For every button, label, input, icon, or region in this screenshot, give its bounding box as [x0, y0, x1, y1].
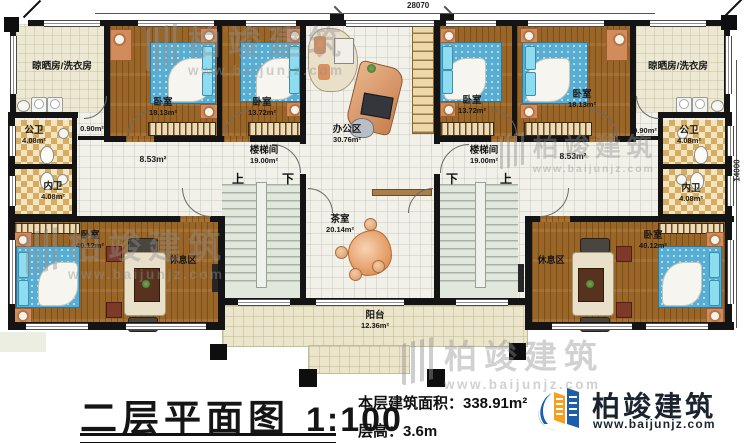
stool — [372, 260, 385, 273]
room-area: 13.72m² — [458, 107, 486, 115]
corridor-area-right: 8.53m² — [560, 152, 587, 162]
room-label-private-bath-left: 内卫4.08m² — [41, 182, 65, 201]
window — [9, 240, 16, 304]
wall — [300, 174, 306, 305]
wall — [78, 136, 108, 140]
lamp — [709, 310, 721, 322]
washer-drum — [50, 99, 60, 109]
wall — [434, 20, 440, 144]
wall — [10, 112, 78, 118]
lamp — [523, 106, 535, 118]
window — [650, 20, 706, 27]
room-area: 19.00m² — [470, 157, 499, 165]
wardrobe — [440, 122, 494, 136]
corridor-area-left: 8.53m² — [140, 155, 167, 165]
pillow — [289, 70, 300, 94]
room-label-balcony: 阳台12.36m² — [361, 311, 389, 330]
pillow — [709, 280, 720, 306]
room-area: 8.53m² — [140, 155, 167, 165]
wall — [517, 136, 589, 142]
stool — [364, 218, 377, 231]
pillow — [289, 46, 300, 70]
wall — [300, 20, 306, 144]
pillow — [442, 70, 453, 94]
wall — [434, 136, 491, 142]
window — [528, 20, 604, 27]
stair-rail-left — [256, 182, 267, 288]
pillow — [202, 72, 213, 96]
wall — [630, 20, 636, 140]
room-label-bedroom-18-left: 卧室18.13m² — [149, 98, 177, 117]
closet-area-left: 0.90m² — [80, 125, 104, 133]
room-name: 休息区 — [537, 255, 564, 265]
room-area: 40.12m² — [76, 242, 104, 250]
armchair — [128, 238, 158, 253]
pillow — [202, 46, 213, 70]
sofa-cushion — [318, 64, 330, 80]
wall — [218, 216, 225, 330]
balcony-column — [427, 369, 445, 387]
wall — [72, 114, 77, 220]
room-label-bedroom-18-right: 卧室18.13m² — [568, 90, 596, 109]
window — [26, 323, 88, 330]
plant — [586, 280, 594, 288]
lamp — [523, 30, 535, 42]
room-area: 20.14m² — [326, 226, 354, 234]
balcony-column — [299, 369, 317, 387]
room-label-stairwell-left: 楼梯间19.00m² — [250, 146, 279, 165]
window — [9, 126, 16, 156]
room-label-master-left: 卧室40.12m² — [76, 231, 104, 250]
room-label-private-bath-right: 内卫4.08m² — [679, 184, 703, 203]
room-area: 18.13m² — [149, 109, 177, 117]
room-label-public-bath-left: 公卫4.08m² — [22, 126, 46, 145]
stool — [349, 268, 362, 281]
corner-flag-line — [725, 0, 743, 16]
room-label-laundry-left: 晾晒房/洗衣房 — [32, 62, 92, 73]
wall — [104, 20, 110, 140]
room-area: 4.08m² — [41, 193, 65, 201]
pillow — [442, 46, 453, 70]
room-label-tea: 茶室20.14m² — [326, 215, 354, 234]
window — [552, 323, 632, 330]
door-threshold — [491, 136, 517, 142]
side-table — [106, 302, 122, 318]
bed-blanket — [38, 262, 78, 306]
stair-rail-right — [475, 182, 486, 288]
room-name: 晾晒房/洗衣房 — [32, 62, 92, 73]
lamp — [17, 234, 29, 246]
room-area: 13.72m² — [248, 109, 276, 117]
wardrobe — [524, 122, 592, 136]
window — [9, 176, 16, 206]
laundry-sink — [17, 100, 30, 112]
wall — [658, 112, 726, 118]
room-area: 19.00m² — [250, 157, 279, 165]
room-label-lounge-left: 休息区 — [169, 255, 196, 265]
wall — [570, 216, 734, 222]
shelf-ladder — [412, 24, 434, 134]
pillow — [18, 252, 29, 278]
room-area: 4.08m² — [679, 195, 703, 203]
window — [727, 240, 734, 304]
corner-flag-line — [23, 0, 41, 18]
corner-marker — [4, 17, 19, 32]
stool — [335, 246, 348, 259]
dimension-right-label: 14000 — [733, 151, 742, 191]
toilet — [694, 146, 708, 164]
window — [725, 36, 732, 94]
wall — [8, 216, 180, 222]
room-area: 0.90m² — [80, 125, 104, 133]
wall — [636, 136, 660, 140]
balcony-column — [509, 343, 526, 360]
room-label-laundry-right: 晾晒房/洗衣房 — [648, 62, 708, 73]
dimension-line-top — [95, 13, 655, 14]
brand-url: www.baijunjz.com — [593, 417, 716, 431]
sofa-cushion — [314, 36, 326, 54]
room-area: 4.08m² — [22, 137, 46, 145]
room-label-bedroom-13-left: 卧室13.72m² — [248, 98, 276, 117]
window — [446, 20, 496, 27]
pillow — [18, 280, 29, 306]
room-area: 12.36m² — [361, 322, 389, 330]
room-area: 30.76m² — [333, 136, 362, 144]
wall — [10, 164, 72, 169]
laundry-sink — [711, 100, 724, 112]
dimension-line-right — [736, 60, 737, 328]
lamp — [17, 310, 29, 322]
window — [246, 20, 296, 27]
corner-marker — [721, 15, 737, 30]
wardrobe — [248, 122, 302, 136]
tv — [518, 264, 524, 292]
pillow — [525, 46, 536, 70]
room-name: 休息区 — [169, 255, 196, 265]
window — [238, 299, 290, 306]
lamp — [613, 33, 626, 46]
game-table — [334, 38, 354, 64]
window — [10, 36, 17, 94]
stair-down-label-left: 下 — [282, 170, 294, 187]
floor-plan-page: 28070 14000 晾晒房/洗衣房 晾晒房/洗衣房 卧室18.13m² 卧室… — [0, 0, 750, 444]
side-table — [106, 246, 122, 262]
basin — [58, 128, 69, 139]
room-label-office: 办公区30.76m² — [333, 125, 362, 144]
room-label-public-bath-right: 公卫4.08m² — [677, 126, 701, 145]
lamp — [203, 106, 215, 118]
wall — [330, 14, 344, 20]
brand-logo-icon — [534, 384, 588, 432]
room-label-stairwell-right: 楼梯间19.00m² — [470, 146, 499, 165]
window — [138, 20, 214, 27]
balcony-extension — [308, 345, 410, 374]
pillow — [525, 72, 536, 96]
washer-drum — [34, 99, 44, 109]
window — [456, 299, 508, 306]
room-area: 4.08m² — [677, 137, 701, 145]
pillow — [709, 252, 720, 278]
plant — [367, 64, 376, 73]
door-threshold — [540, 216, 570, 222]
wall — [250, 136, 306, 142]
wall — [615, 136, 636, 142]
lamp — [443, 104, 455, 116]
floor-area-text: 本层建筑面积：338.91m² — [358, 392, 527, 413]
floor-height-text: 层高：3.6m — [358, 420, 437, 441]
wall — [434, 174, 440, 305]
washer-drum — [679, 99, 689, 109]
wall — [663, 164, 725, 169]
wall — [525, 216, 532, 330]
stair-up-label-right: 上 — [500, 170, 512, 187]
bed-blanket — [662, 262, 702, 306]
room-area: 0.90m² — [633, 127, 657, 135]
stair-up-label-left: 上 — [232, 170, 244, 187]
washer-drum — [695, 99, 705, 109]
side-table — [616, 302, 632, 318]
dimension-top-label: 28070 — [407, 1, 429, 10]
closet-area-right: 0.90m² — [633, 127, 657, 135]
window — [44, 20, 100, 27]
room-label-bedroom-13-right: 卧室13.72m² — [458, 96, 486, 115]
window — [346, 20, 434, 27]
room-area: 40.12m² — [639, 242, 667, 250]
room-name: 晾晒房/洗衣房 — [648, 62, 708, 73]
door-threshold — [180, 216, 210, 222]
room-label-master-right: 卧室40.12m² — [639, 231, 667, 250]
plant — [142, 280, 150, 288]
balcony-column — [210, 344, 227, 360]
wall — [217, 20, 222, 142]
room-area: 8.53m² — [560, 152, 587, 162]
window — [126, 323, 206, 330]
wall — [154, 136, 224, 142]
armchair — [580, 238, 610, 253]
stair-down-label-right: 下 — [446, 170, 458, 187]
lamp — [709, 234, 721, 246]
door-threshold — [224, 136, 250, 142]
toilet — [40, 146, 54, 164]
room-label-lounge-right: 休息区 — [537, 255, 564, 265]
room-area: 18.13m² — [568, 101, 596, 109]
wardrobe — [148, 122, 216, 136]
window — [646, 323, 708, 330]
lamp — [113, 33, 126, 46]
title-underline — [80, 433, 336, 443]
lamp — [203, 30, 215, 42]
ground-patch — [0, 332, 46, 352]
side-table — [616, 246, 632, 262]
balcony-door — [316, 299, 404, 306]
lamp — [443, 30, 455, 42]
